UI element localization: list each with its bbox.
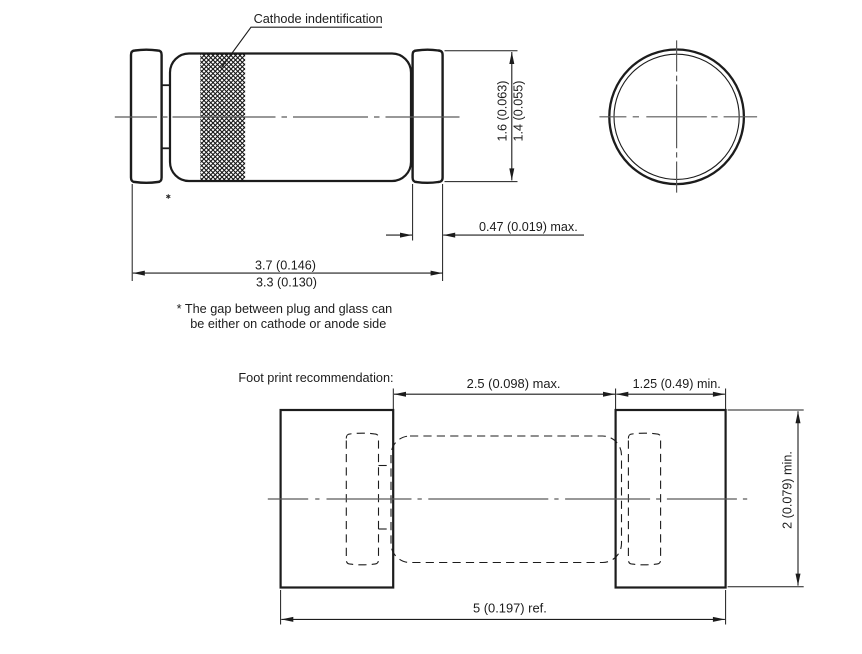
svg-text:Foot print recommendation:: Foot print recommendation: [238,371,393,385]
svg-text:1.4 (0.055): 1.4 (0.055) [511,81,525,142]
svg-text:0.47 (0.019) max.: 0.47 (0.019) max. [479,220,578,234]
svg-text:3.3 (0.130): 3.3 (0.130) [256,275,317,289]
svg-text:5 (0.197) ref.: 5 (0.197) ref. [473,600,547,615]
svg-text:Cathode indentification: Cathode indentification [254,12,383,26]
svg-text:* The gap between plug and gla: * The gap between plug and glass can [177,302,393,316]
svg-text:3.7 (0.146): 3.7 (0.146) [255,258,316,272]
svg-text:1.25 (0.49) min.: 1.25 (0.49) min. [633,377,721,391]
svg-text:2 (0.079) min.: 2 (0.079) min. [781,451,795,529]
svg-text:be either on cathode or anode: be either on cathode or anode side [190,317,386,331]
svg-text:1.6 (0.063): 1.6 (0.063) [495,81,509,142]
svg-text:2.5 (0.098) max.: 2.5 (0.098) max. [467,376,561,391]
